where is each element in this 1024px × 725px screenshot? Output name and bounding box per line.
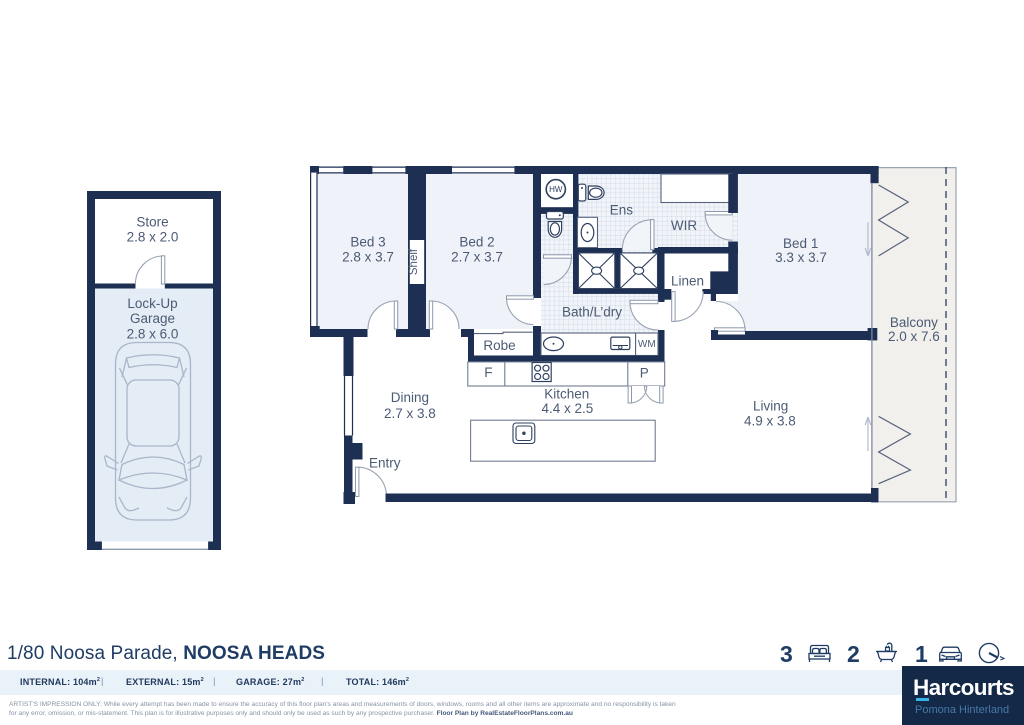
svg-text:Bath/L’dry: Bath/L’dry (562, 305, 622, 320)
svg-text:Bed 3: Bed 3 (350, 235, 385, 250)
svg-text:2.0 x 7.6: 2.0 x 7.6 (888, 329, 940, 344)
svg-text:HW: HW (549, 185, 563, 194)
svg-text:Bed 2: Bed 2 (459, 235, 494, 250)
svg-text:3.3 x 3.7: 3.3 x 3.7 (775, 250, 827, 265)
svg-text:2.8 x 6.0: 2.8 x 6.0 (127, 327, 179, 342)
svg-text:4.4 x 2.5: 4.4 x 2.5 (542, 401, 594, 416)
svg-text:Ens: Ens (610, 203, 634, 218)
svg-text:Bed 1: Bed 1 (783, 236, 818, 251)
svg-text:2.7 x 3.8: 2.7 x 3.8 (384, 406, 436, 421)
svg-text:WM: WM (638, 339, 656, 350)
svg-text:Kitchen: Kitchen (544, 387, 589, 402)
svg-text:2.8 x 2.0: 2.8 x 2.0 (127, 230, 179, 245)
svg-text:F: F (484, 365, 492, 380)
svg-text:Robe: Robe (483, 338, 515, 353)
svg-text:Balcony: Balcony (890, 315, 938, 330)
svg-text:2.8 x 3.7: 2.8 x 3.7 (342, 250, 394, 265)
svg-text:WIR: WIR (671, 218, 697, 233)
svg-text:Lock-Up: Lock-Up (127, 296, 177, 311)
svg-text:Garage: Garage (130, 311, 175, 326)
svg-text:Dining: Dining (391, 390, 429, 405)
svg-text:2.7 x 3.7: 2.7 x 3.7 (451, 250, 503, 265)
svg-text:Entry: Entry (369, 456, 401, 471)
svg-text:4.9 x 3.8: 4.9 x 3.8 (744, 414, 796, 429)
svg-text:Shelf: Shelf (408, 248, 420, 275)
svg-text:Linen: Linen (671, 274, 704, 289)
svg-text:P: P (640, 366, 649, 381)
svg-text:Living: Living (753, 399, 788, 414)
svg-text:Store: Store (136, 215, 168, 230)
